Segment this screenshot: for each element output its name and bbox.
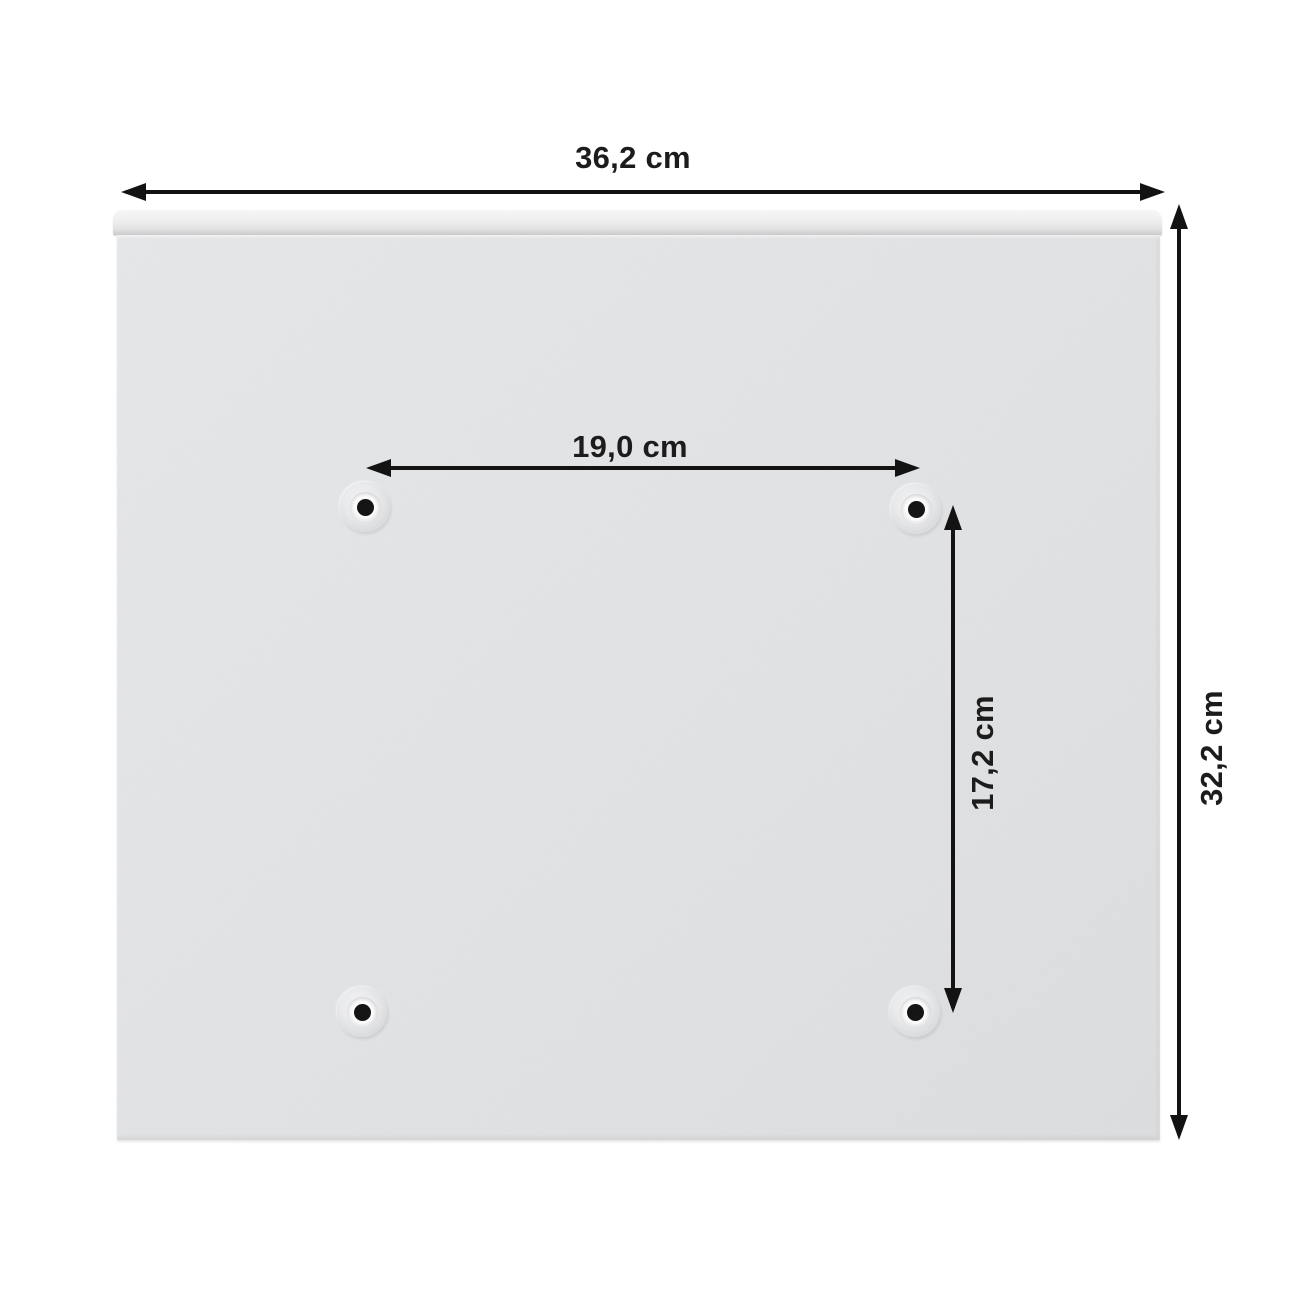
dimension-diagram: 36,2 cm 32,2 cm 19,0 cm 17,2 cm — [0, 0, 1300, 1300]
mounting-hole-ring — [347, 997, 378, 1028]
panel-top-lip — [113, 210, 1162, 235]
mounting-hole-bottom-left — [337, 987, 387, 1037]
mounting-hole-top-left — [340, 482, 390, 532]
total-height-label: 32,2 cm — [1194, 690, 1230, 806]
panel-texture — [117, 235, 1160, 1140]
arrowhead-up-icon — [944, 505, 962, 530]
arrowhead-left-icon — [121, 183, 146, 201]
mounting-hole-top-right — [891, 484, 941, 534]
mounting-hole-center — [354, 1004, 371, 1021]
mounting-hole-center — [908, 501, 925, 518]
mounting-hole-ring — [350, 492, 381, 523]
panel-back-plate — [117, 235, 1160, 1140]
total-width-dimension-arrow — [121, 183, 1165, 201]
mounting-hole-ring — [901, 494, 932, 525]
arrowhead-right-icon — [895, 459, 920, 477]
arrowhead-down-icon — [944, 988, 962, 1013]
total-height-dimension-arrow — [1170, 204, 1188, 1140]
arrowhead-down-icon — [1170, 1115, 1188, 1140]
mounting-hole-ring — [900, 997, 931, 1028]
arrowhead-up-icon — [1170, 204, 1188, 229]
arrowhead-left-icon — [366, 459, 391, 477]
total-width-label: 36,2 cm — [575, 140, 691, 176]
hole-spacing-vertical-label: 17,2 cm — [965, 695, 1001, 811]
arrow-line — [126, 190, 1160, 194]
arrow-line — [371, 466, 915, 470]
mounting-hole-center — [907, 1004, 924, 1021]
hole-spacing-vertical-arrow — [944, 505, 962, 1013]
hole-spacing-horizontal-label: 19,0 cm — [572, 429, 688, 465]
arrow-line — [1177, 209, 1181, 1135]
mounting-hole-bottom-right — [890, 987, 940, 1037]
arrowhead-right-icon — [1140, 183, 1165, 201]
mounting-hole-center — [357, 499, 374, 516]
arrow-line — [951, 510, 955, 1008]
